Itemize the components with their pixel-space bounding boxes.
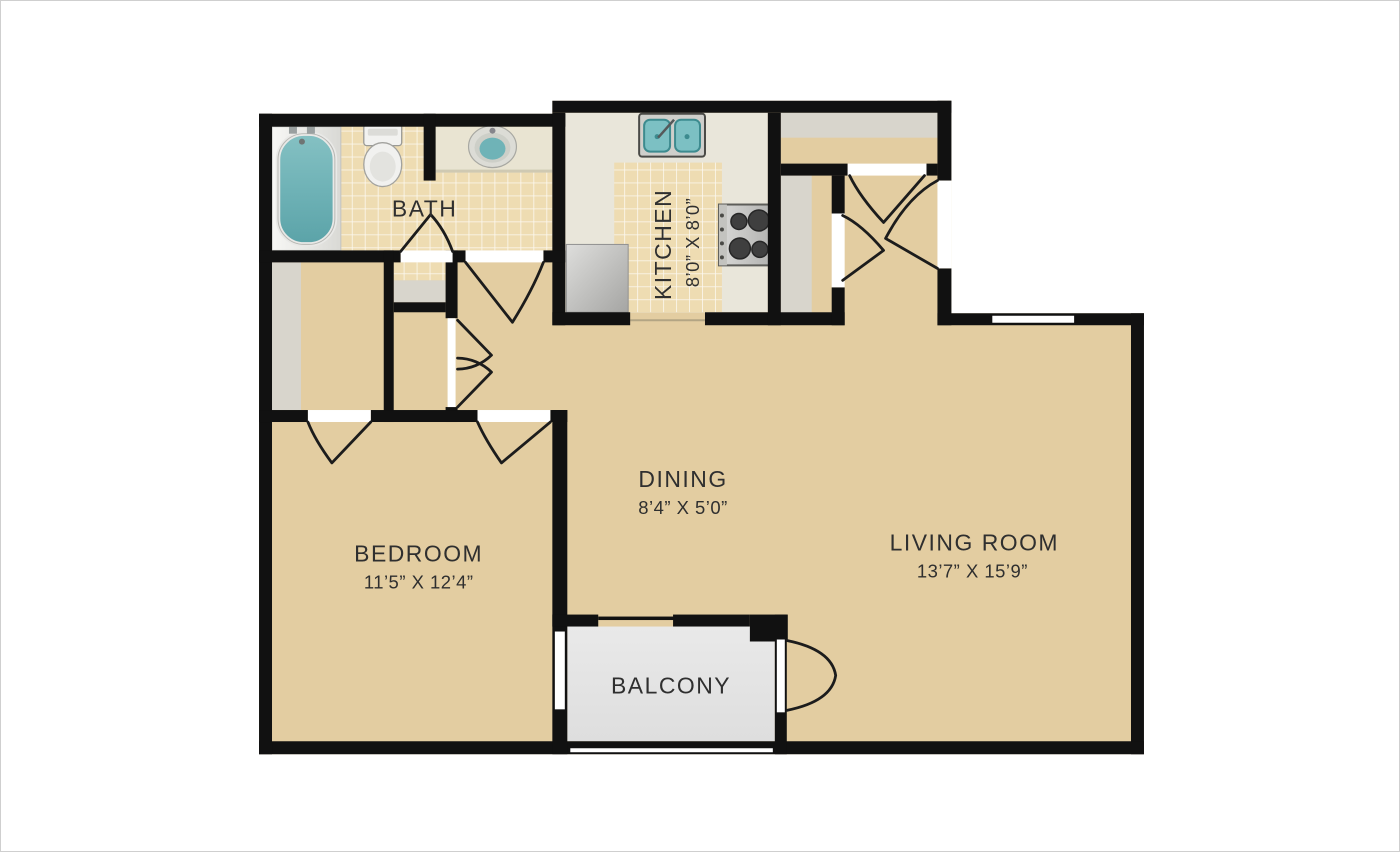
wall-balcony-top-2 — [673, 615, 750, 627]
front-door-opening — [937, 181, 951, 269]
wall-toilet-stub — [424, 114, 436, 181]
toilet-tank-lid — [368, 129, 398, 136]
wall-entry-closet-bottom-2 — [926, 164, 937, 176]
bathtub — [272, 127, 341, 251]
floor-plan-svg: BATH KITCHEN 8’0” X 8’0” DINING 8’4” X 5… — [1, 1, 1399, 851]
linen-nook-tile — [394, 262, 446, 280]
wall-bath-bottom-3 — [543, 250, 565, 262]
balcony-label: BALCONY — [611, 672, 731, 698]
living-room-dimensions: 13’7” X 15’9” — [917, 561, 1028, 582]
wall-bath-kitchen-divider — [552, 113, 565, 326]
balcony-railing — [570, 748, 773, 752]
bedroom-label: BEDROOM — [354, 541, 483, 567]
walkin-closet-door-opening — [308, 410, 371, 422]
walkin-closet-shelf — [272, 262, 301, 410]
pantry-door-opening — [832, 214, 845, 288]
balcony-door-opening — [777, 639, 785, 712]
stove-knob-3 — [720, 241, 724, 245]
entry-closet-shelf — [781, 113, 938, 138]
vanity-counter-edge — [436, 170, 553, 173]
toilet — [364, 125, 402, 187]
wall-bottom — [259, 741, 1144, 754]
bathtub-faucet-handle-left — [289, 127, 297, 134]
bathtub-faucet-handle-right — [307, 127, 315, 134]
living-room-label: LIVING ROOM — [890, 530, 1059, 556]
wall-bedroom-top-2 — [371, 410, 478, 422]
dining-dimensions: 8’4” X 5’0” — [638, 497, 728, 518]
vanity-sink — [469, 126, 517, 168]
pantry-shelf — [781, 176, 812, 314]
toilet-seat — [370, 152, 396, 182]
living-room-window — [992, 316, 1074, 323]
wall-top-kitchen-entry — [552, 101, 951, 113]
stove-burner-tr — [748, 210, 769, 231]
vanity-sink-water — [480, 138, 506, 160]
floor-plan-image: BATH KITCHEN 8’0” X 8’0” DINING 8’4” X 5… — [0, 0, 1400, 852]
vanity-sink-faucet — [489, 128, 495, 134]
bath-door-opening — [466, 250, 544, 262]
refrigerator — [566, 244, 628, 312]
wall-balcony-top-1 — [552, 615, 598, 627]
stove-knob-2 — [720, 227, 724, 231]
stove-knob-4 — [720, 255, 724, 259]
wall-left — [259, 114, 272, 754]
wall-kitchen-bottom-1 — [552, 312, 630, 325]
stove-burner-tl — [731, 214, 747, 230]
wall-right — [1131, 313, 1144, 754]
balcony-slider-glass — [598, 617, 675, 620]
bathtub-spout — [299, 139, 305, 145]
wall-bedroom-top-1 — [259, 410, 308, 422]
bedroom-dimensions: 11’5” X 12’4” — [364, 572, 474, 593]
stove-knob-1 — [720, 214, 724, 218]
entry-closet-door-opening — [848, 164, 927, 176]
wall-closet-left — [384, 250, 394, 422]
kitchen-dimensions: 8’0” X 8’0” — [682, 198, 703, 288]
wall-pantry-right-upper — [832, 176, 845, 214]
bathtub-basin — [278, 134, 335, 245]
wall-entry-right-upper — [937, 101, 951, 181]
dining-label: DINING — [638, 466, 727, 492]
wall-bath-bottom-1 — [259, 250, 401, 262]
bath-label: BATH — [392, 195, 457, 221]
wall-entry-closet-bottom-1 — [781, 164, 848, 176]
kitchen-label: KITCHEN — [650, 189, 676, 300]
bedroom-balcony-window — [555, 632, 565, 710]
stove-burner-br — [752, 241, 768, 257]
kitchen-sink — [639, 114, 705, 157]
bedroom-door-opening — [478, 410, 551, 422]
wall-nook-bottom — [394, 302, 446, 312]
bath-linen-door-opening — [401, 250, 453, 262]
wall-top-bath — [259, 114, 565, 127]
wall-pantry-right-lower — [832, 287, 845, 325]
hall-closet-door-opening — [448, 318, 456, 407]
linen-nook-shelf — [394, 280, 446, 302]
stove-cooktop — [719, 205, 772, 266]
wall-kitchen-pantry-divider — [768, 113, 781, 326]
stove-burner-bl — [729, 238, 750, 259]
kitchen-sink-drain-right — [685, 134, 690, 139]
